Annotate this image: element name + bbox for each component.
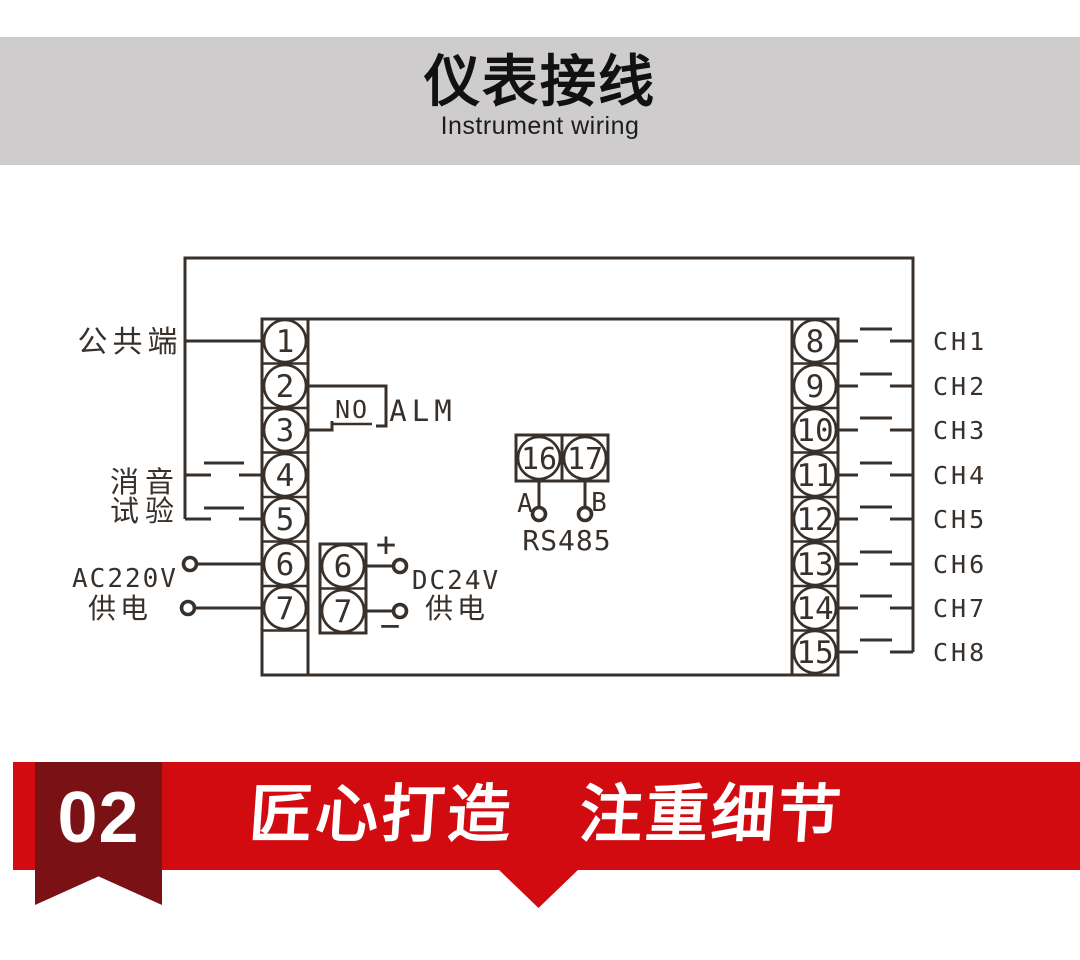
label-dc24v: DC24V [412,566,500,596]
channel-label: CH6 [933,550,987,579]
dc-supply-block: 6 7 + − DC24V 供电 [320,525,500,646]
label-rs485-a: A [517,489,533,519]
label-dc-minus: − [380,606,400,646]
terminal-number: 1 [276,324,295,360]
terminal-number: 8 [806,324,825,360]
terminal-number: 15 [796,635,833,671]
rs485-node-icon [533,508,546,521]
label-rs485: RS485 [522,524,611,557]
channel-switch-ch7 [838,596,913,608]
terminal-number: 13 [796,547,833,583]
terminal-number: 14 [796,591,833,627]
terminal-number: 16 [521,442,557,477]
page: 仪表接线 Instrument wiring [0,0,1080,960]
terminal-number: 5 [276,502,295,538]
rs485-node-icon [579,508,592,521]
rs485-block: 16 17 A B RS485 [516,435,612,557]
channel-switch-ch8 [838,640,913,652]
channel-switch-ch6 [838,552,913,564]
label-rs485-b: B [591,488,607,518]
ac-supply: AC220V 供电 [72,558,262,625]
label-common-terminal: 公共端 [78,326,183,359]
channel-label: CH1 [933,327,987,356]
channel-switch-ch2 [838,374,913,386]
relay-wire-bottom [308,421,332,430]
channel-switch-ch3 [838,418,913,430]
terminal-number: 3 [276,413,295,449]
label-test: 试验 [110,495,180,528]
terminal-number: 9 [806,369,825,405]
label-ac220v: AC220V [72,564,178,594]
label-relay-no: NO [335,395,369,424]
channel-switches [838,329,913,652]
ac-node-icon [182,602,195,615]
channel-label: CH8 [933,638,987,667]
terminal-number: 4 [276,458,295,494]
terminal-number: 17 [567,442,603,477]
alarm-relay-contact: NO ALM [308,386,457,430]
channel-switch-ch5 [838,507,913,519]
channel-label: CH2 [933,372,987,401]
terminal-number: 2 [276,369,295,405]
channel-labels: CH1 CH2 CH3 CH4 CH5 CH6 CH7 CH8 [933,327,987,667]
channel-label: CH5 [933,505,987,534]
label-dc-supply: 供电 [425,593,489,624]
channel-label: CH4 [933,461,987,490]
terminal-number: 10 [796,413,833,449]
left-terminal-strip: 1 2 3 4 5 6 7 [264,320,306,629]
label-mute: 消音 [110,466,180,499]
channel-switch-ch1 [838,329,913,341]
terminal-number: 7 [276,591,295,627]
terminal-number: 6 [334,549,353,585]
terminal-number: 12 [796,502,833,538]
terminal-number: 7 [334,594,353,630]
terminal-number: 11 [796,458,833,494]
label-ac-supply: 供电 [88,593,152,624]
terminal-number: 6 [276,547,295,583]
section-number: 02 [35,770,162,866]
banner-slogan: 匠心打造 注重细节 [9,762,1080,870]
section-banner: 匠心打造 注重细节 [13,762,1080,870]
ac-node-icon [184,558,197,571]
channel-label: CH7 [933,594,987,623]
channel-label: CH3 [933,416,987,445]
label-dc-plus: + [376,525,396,565]
label-alm: ALM [389,394,456,428]
channel-switch-ch4 [838,463,913,475]
